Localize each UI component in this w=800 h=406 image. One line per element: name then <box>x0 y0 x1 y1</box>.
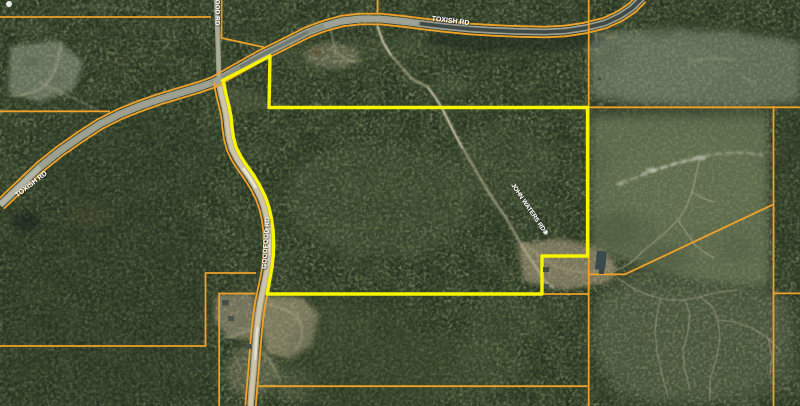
svg-text:GOODFOOD RD: GOODFOOD RD <box>213 0 220 26</box>
